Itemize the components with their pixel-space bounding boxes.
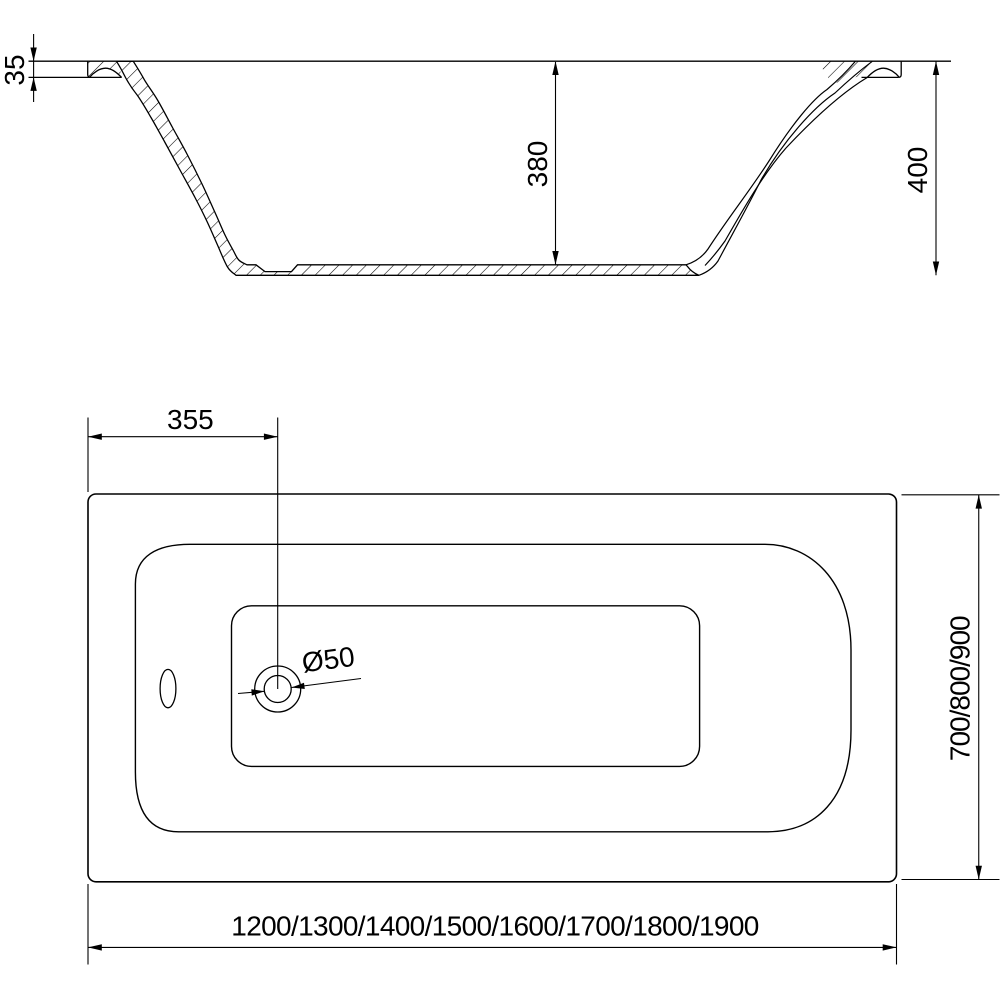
svg-text:1200/1300/1400/1500/1600/1700/: 1200/1300/1400/1500/1600/1700/1800/1900 [231, 910, 758, 941]
svg-text:Ø50: Ø50 [300, 641, 356, 679]
svg-text:380: 380 [522, 141, 553, 188]
svg-text:400: 400 [902, 147, 933, 194]
svg-text:355: 355 [167, 404, 214, 435]
svg-text:35: 35 [0, 54, 30, 85]
svg-text:700/800/900: 700/800/900 [944, 616, 975, 761]
